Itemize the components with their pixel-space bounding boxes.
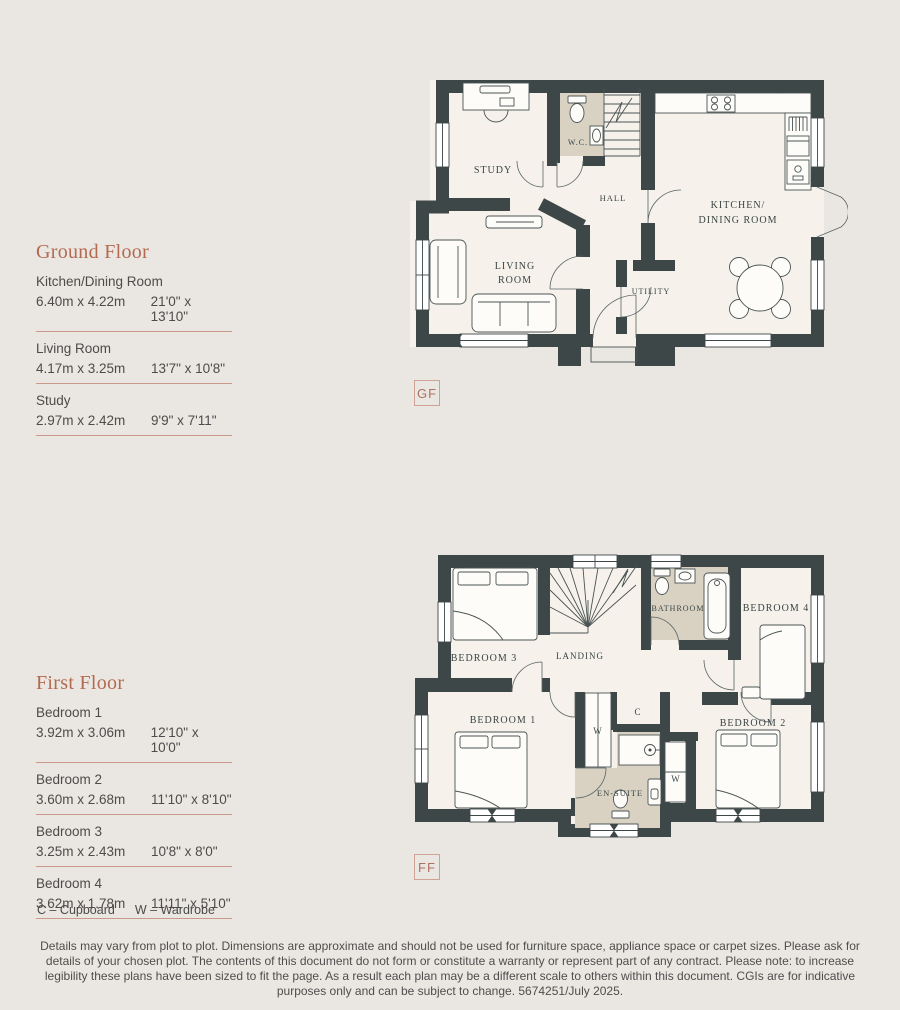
french-doors-icon [811,187,848,237]
basin-icon [648,779,661,805]
room-label-landing: LANDING [556,651,604,661]
first-floor-plan: BEDROOM 3 LANDING BATHROOM BEDROOM 4 BED… [408,545,848,890]
sofa-icon [472,294,556,332]
imperial-dimensions: 12'10" x 10'0" [151,725,232,755]
ground-floor-tag: GF [414,380,440,406]
room-name: Bedroom 1 [36,705,232,720]
dimension-row-study: Study 2.97m x 2.42m 9'9" x 7'11" [36,393,232,436]
room-label-living-line1: LIVING [495,261,535,272]
room-label-hall: HALL [600,193,627,203]
double-bed-icon [455,732,527,808]
dimension-row-bedroom2: Bedroom 2 3.60m x 2.68m 11'10" x 8'10" [36,772,232,815]
room-label-kitchen-line2: DINING ROOM [698,215,777,226]
label-wardrobe-2: W [671,774,681,784]
metric-dimensions: 4.17m x 3.25m [36,361,151,376]
label-wardrobe-1: W [593,726,603,736]
room-name: Bedroom 3 [36,824,232,839]
window-icon [651,555,681,568]
room-label-utility: UTILITY [632,287,671,296]
metric-dimensions: 2.97m x 2.42m [36,413,151,428]
legend: C – CupboardW – Wardrobe [37,903,215,917]
shower-icon [619,735,660,765]
room-label-living-line2: ROOM [498,275,532,286]
window-icon [436,123,449,167]
basin-icon [590,126,603,145]
metric-dimensions: 6.40m x 4.22m [36,294,151,324]
imperial-dimensions: 9'9" x 7'11" [151,413,217,428]
tv-unit-icon [486,216,542,228]
double-bed-icon [453,568,537,640]
dimension-row-kitchen: Kitchen/Dining Room 6.40m x 4.22m 21'0" … [36,274,232,332]
room-label-bedroom2: BEDROOM 2 [720,718,787,729]
dimension-row-bedroom3: Bedroom 3 3.25m x 2.43m 10'8" x 8'0" [36,824,232,867]
room-name: Living Room [36,341,232,356]
first-floor-heading: First Floor [36,672,124,695]
double-bed-icon [716,730,780,808]
ground-floor-heading: Ground Floor [36,241,149,264]
metric-dimensions: 3.25m x 2.43m [36,844,151,859]
window-icon [415,715,428,783]
window-icon [811,595,824,663]
room-label-bedroom4: BEDROOM 4 [743,603,810,614]
imperial-dimensions: 10'8" x 8'0" [151,844,218,859]
room-label-bedroom1: BEDROOM 1 [470,715,537,726]
window-icon [438,602,451,642]
room-label-study: STUDY [474,165,512,176]
dimension-row-living: Living Room 4.17m x 3.25m 13'7" x 10'8" [36,341,232,384]
label-cupboard: C [634,707,641,717]
window-icon [573,555,617,568]
armchair-icon [430,240,466,304]
legend-wardrobe: W – Wardrobe [135,903,215,917]
basin-icon [675,569,695,583]
room-label-bathroom: BATHROOM [652,604,705,613]
window-icon [811,118,824,167]
room-label-bedroom3: BEDROOM 3 [451,653,518,664]
first-floor-dimension-table: Bedroom 1 3.92m x 3.06m 12'10" x 10'0" B… [36,705,232,928]
ground-floor-plan: STUDY W.C. HALL KITCHEN/ DINING ROOM LIV… [408,70,848,410]
metric-dimensions: 3.92m x 3.06m [36,725,151,755]
dining-table-icon [730,258,791,319]
room-label-kitchen-line1: KITCHEN/ [711,200,766,211]
dimension-row-bedroom1: Bedroom 1 3.92m x 3.06m 12'10" x 10'0" [36,705,232,763]
room-name: Study [36,393,232,408]
room-name: Bedroom 2 [36,772,232,787]
window-icon [811,722,824,792]
imperial-dimensions: 11'10" x 8'10" [151,792,232,807]
bath-icon [704,573,730,639]
toilet-icon [654,569,670,595]
disclaimer-text: Details may vary from plot to plot. Dime… [35,939,865,999]
legend-cupboard: C – Cupboard [37,903,115,917]
room-name: Bedroom 4 [36,876,232,891]
utility-projection-wall [635,340,675,366]
wardrobe-icon [665,742,686,802]
room-label-ensuite: EN-SUITE [597,788,643,798]
window-icon [811,260,824,310]
room-label-wc: W.C. [568,138,588,147]
room-name: Kitchen/Dining Room [36,274,232,289]
imperial-dimensions: 21'0" x 13'10" [151,294,232,324]
metric-dimensions: 3.60m x 2.68m [36,792,151,807]
first-floor-tag: FF [414,854,440,880]
ground-floor-dimension-table: Kitchen/Dining Room 6.40m x 4.22m 21'0" … [36,274,232,445]
porch-post [558,340,581,366]
window-icon [705,334,771,347]
floorplan-page: { "palette": { "page_background": "#eae6… [0,0,900,1010]
window-icon [416,240,429,310]
imperial-dimensions: 13'7" x 10'8" [151,361,225,376]
window-icon [460,334,528,347]
